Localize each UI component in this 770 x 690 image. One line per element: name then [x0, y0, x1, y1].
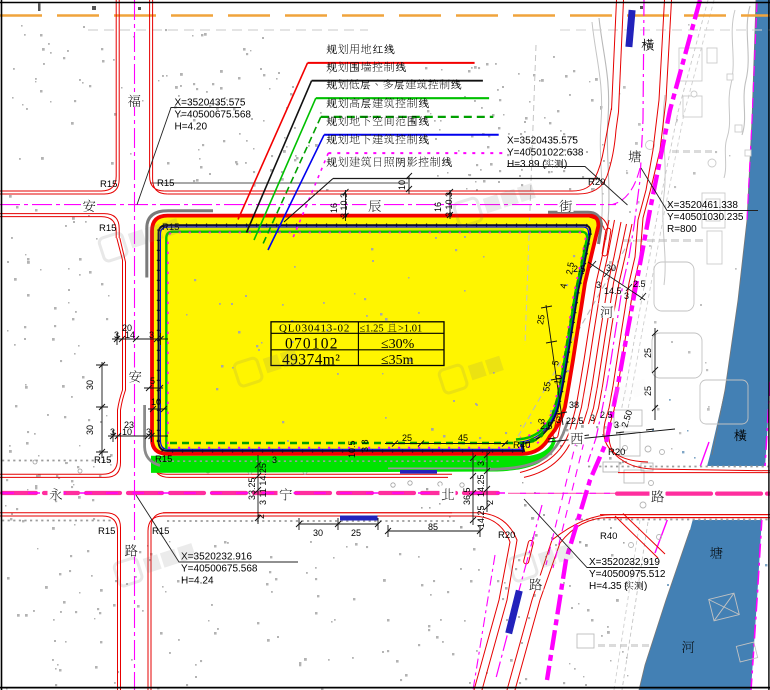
svg-text:3: 3 — [149, 330, 154, 340]
svg-text:38: 38 — [569, 400, 579, 410]
svg-text:3: 3 — [614, 420, 619, 430]
svg-text:3: 3 — [624, 291, 629, 301]
svg-text:X=3520461.338: X=3520461.338 — [667, 200, 738, 211]
svg-text:R20: R20 — [588, 177, 605, 188]
svg-text:3: 3 — [476, 461, 486, 466]
svg-text:10: 10 — [122, 427, 132, 437]
svg-text:3: 3 — [556, 415, 561, 425]
svg-text:QL030413-02: QL030413-02 — [279, 323, 350, 335]
svg-text:3: 3 — [114, 330, 119, 340]
svg-text:14: 14 — [125, 330, 135, 340]
svg-text:25: 25 — [402, 433, 412, 443]
svg-text:H=4.20: H=4.20 — [175, 122, 208, 133]
svg-text:≤35m: ≤35m — [381, 353, 414, 368]
svg-text:14.25: 14.25 — [476, 505, 486, 528]
svg-text:Y=40501022.638: Y=40501022.638 — [507, 147, 584, 158]
svg-text:45: 45 — [458, 433, 468, 443]
svg-text:16: 16 — [433, 202, 443, 212]
svg-text:R15: R15 — [157, 178, 174, 189]
svg-text:30: 30 — [313, 528, 323, 538]
svg-text:R40: R40 — [513, 440, 530, 451]
svg-text:2: 2 — [256, 514, 266, 519]
svg-text:10: 10 — [151, 397, 161, 407]
svg-text:≤1.25: ≤1.25 — [360, 324, 384, 335]
svg-text:3 10.3: 3 10.3 — [444, 192, 454, 217]
svg-text:): ) — [644, 581, 647, 592]
svg-text:Y=40500975.512: Y=40500975.512 — [589, 569, 666, 580]
svg-text:X=3520435.575: X=3520435.575 — [507, 136, 578, 147]
svg-text:3: 3 — [272, 455, 277, 465]
svg-text:R20: R20 — [608, 447, 625, 458]
svg-text:≤30%: ≤30% — [381, 337, 415, 352]
svg-text:R15: R15 — [155, 454, 172, 465]
svg-text:R20: R20 — [498, 530, 515, 541]
svg-text:10.5: 10.5 — [347, 440, 357, 458]
svg-text:2.5: 2.5 — [633, 279, 646, 289]
svg-text:X=3520435.575: X=3520435.575 — [175, 98, 246, 109]
svg-text:25: 25 — [535, 314, 547, 326]
svg-text:2: 2 — [485, 500, 495, 505]
svg-text:R15: R15 — [98, 526, 115, 537]
svg-text:>1.01: >1.01 — [398, 324, 422, 335]
svg-text:3 8: 3 8 — [360, 439, 370, 452]
svg-text:30: 30 — [85, 380, 95, 390]
svg-text:3: 3 — [110, 427, 115, 437]
svg-text:14.5: 14.5 — [604, 286, 622, 296]
svg-text:55: 55 — [541, 381, 553, 393]
svg-text:30: 30 — [606, 263, 616, 273]
svg-text:Y=40501030.235: Y=40501030.235 — [667, 212, 744, 223]
svg-text:H=3.89 (: H=3.89 ( — [507, 159, 546, 170]
svg-text:Y=40500675.568: Y=40500675.568 — [175, 110, 252, 121]
svg-text:36.5: 36.5 — [462, 487, 472, 505]
svg-text:H=4.24: H=4.24 — [181, 576, 214, 587]
svg-text:25: 25 — [643, 348, 653, 358]
svg-text:3: 3 — [146, 427, 151, 437]
svg-text:14.25: 14.25 — [476, 474, 486, 497]
svg-text:2.5: 2.5 — [564, 261, 576, 275]
svg-text:R15: R15 — [99, 223, 116, 234]
svg-text:R15: R15 — [152, 526, 169, 537]
svg-text:3 11 14.25: 3 11 14.25 — [258, 463, 268, 505]
svg-text:33.25: 33.25 — [247, 477, 257, 500]
svg-text:22.5: 22.5 — [566, 416, 584, 426]
svg-text:Y=40500675.568: Y=40500675.568 — [181, 564, 258, 575]
svg-text:R15: R15 — [94, 455, 111, 466]
svg-text:85: 85 — [428, 522, 438, 532]
svg-text:3 10.3: 3 10.3 — [339, 193, 349, 218]
svg-text:5: 5 — [150, 376, 155, 386]
svg-text:25: 25 — [351, 528, 361, 538]
svg-text:R40: R40 — [600, 531, 617, 542]
svg-text:3: 3 — [596, 280, 601, 290]
svg-text:10: 10 — [397, 180, 407, 190]
svg-text:): ) — [564, 159, 567, 170]
svg-text:R=800: R=800 — [667, 224, 697, 235]
svg-text:X=3520232.919: X=3520232.919 — [589, 557, 660, 568]
svg-text:10: 10 — [552, 374, 564, 386]
svg-text:16: 16 — [329, 203, 339, 213]
svg-text:H=4.35 (: H=4.35 ( — [589, 581, 628, 592]
svg-text:R15: R15 — [100, 179, 117, 190]
svg-text:30: 30 — [85, 425, 95, 435]
